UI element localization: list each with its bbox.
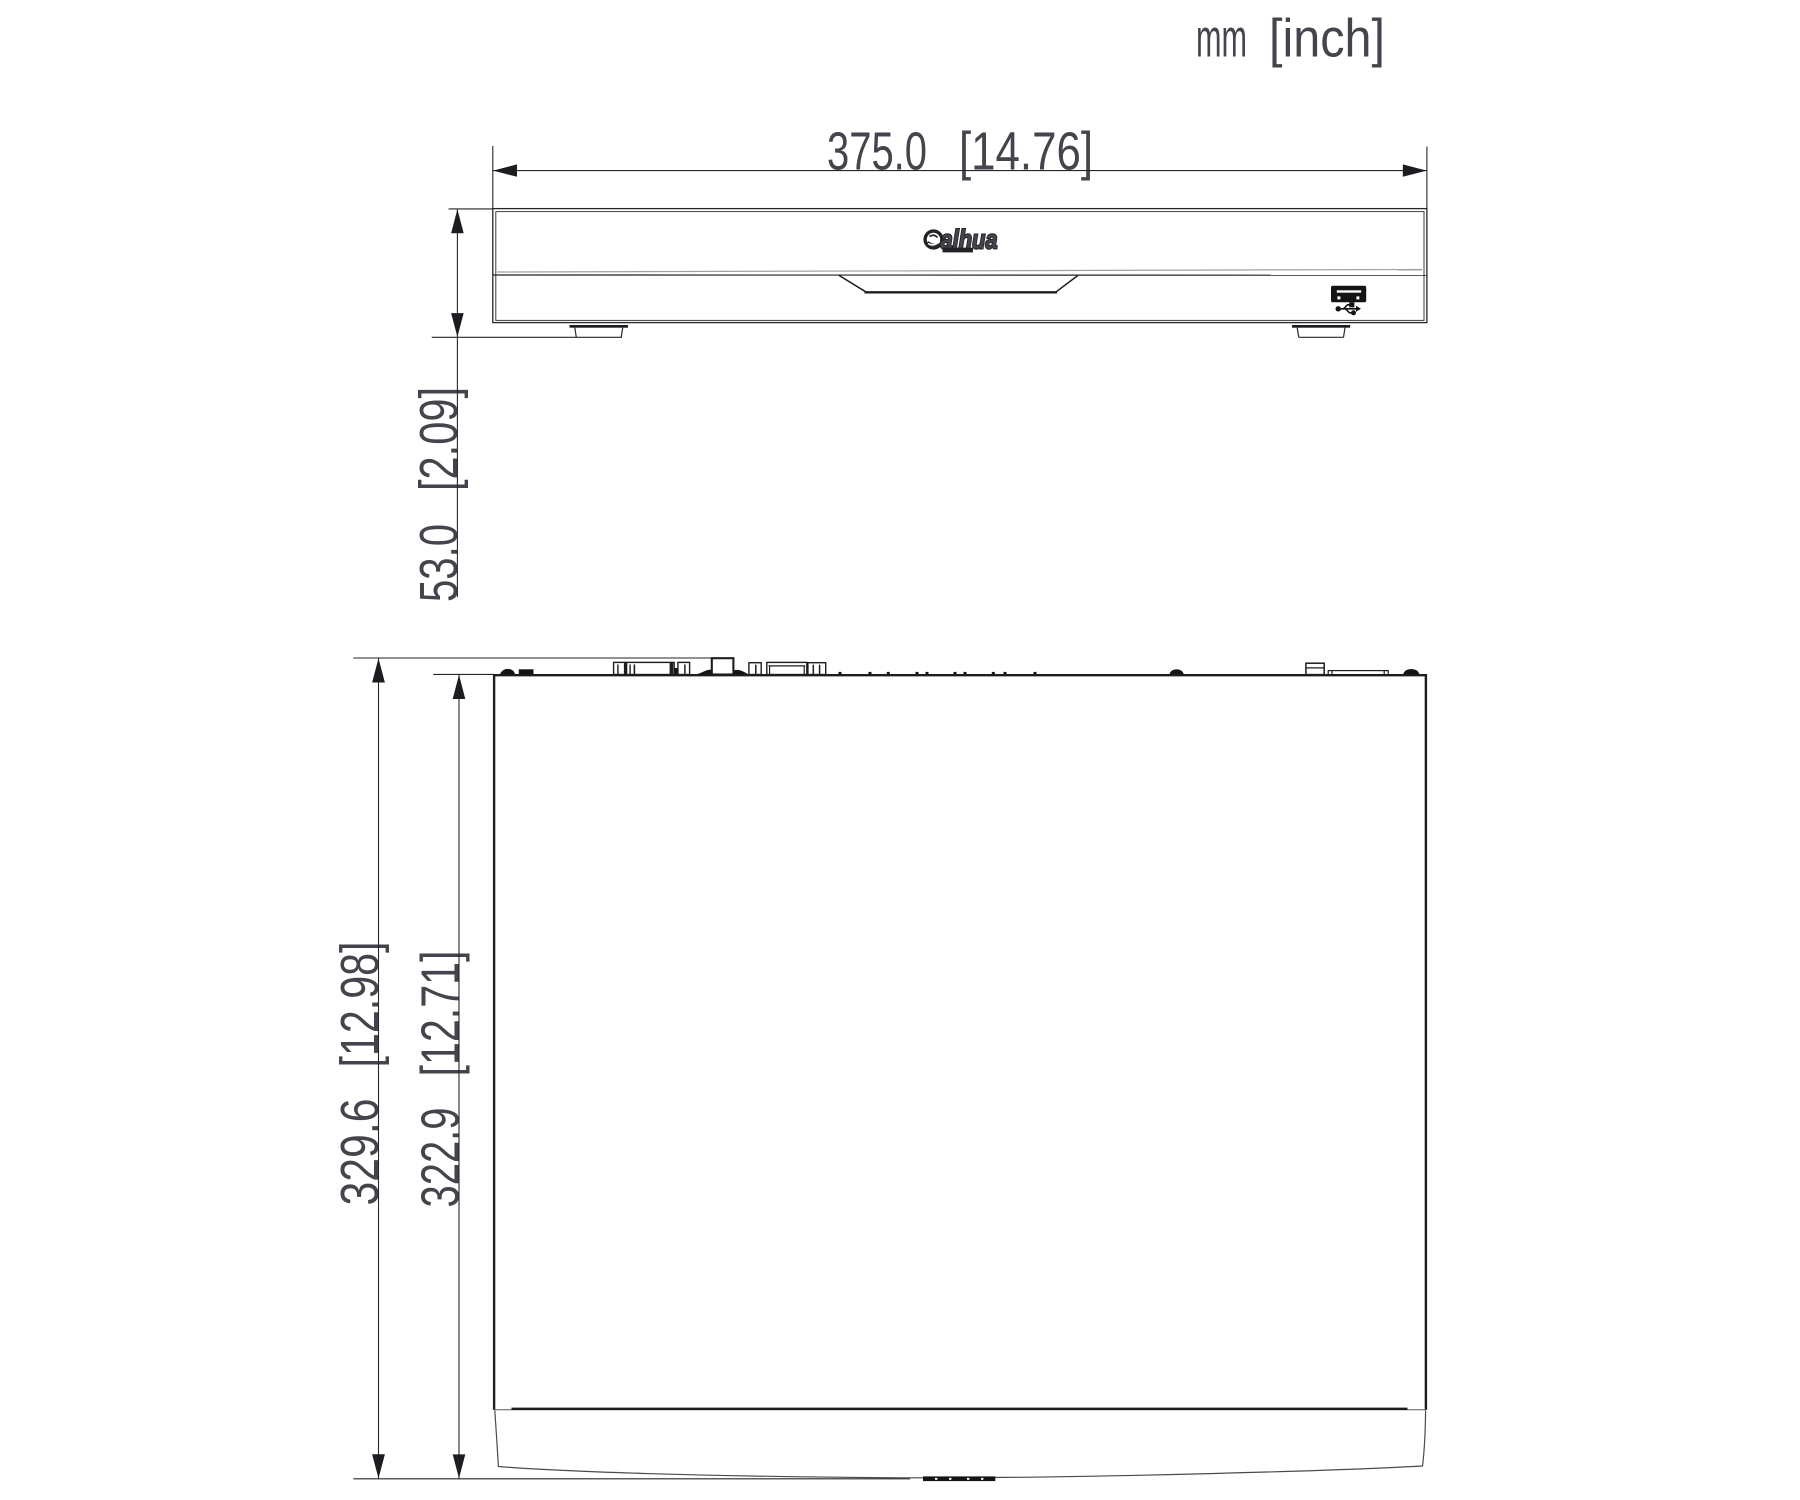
svg-text:53.0: 53.0 [409,524,469,602]
svg-text:375.0: 375.0 [827,122,927,182]
svg-text:329.6: 329.6 [330,1099,390,1206]
svg-text:[14.76]: [14.76] [959,122,1093,182]
svg-text:[12.71]: [12.71] [410,951,470,1077]
svg-text:[2.09]: [2.09] [409,387,469,491]
svg-text:mm: mm [1196,9,1247,69]
svg-text:[12.98]: [12.98] [330,942,390,1068]
svg-text:[inch]: [inch] [1269,9,1385,69]
svg-text:322.9: 322.9 [410,1108,470,1208]
